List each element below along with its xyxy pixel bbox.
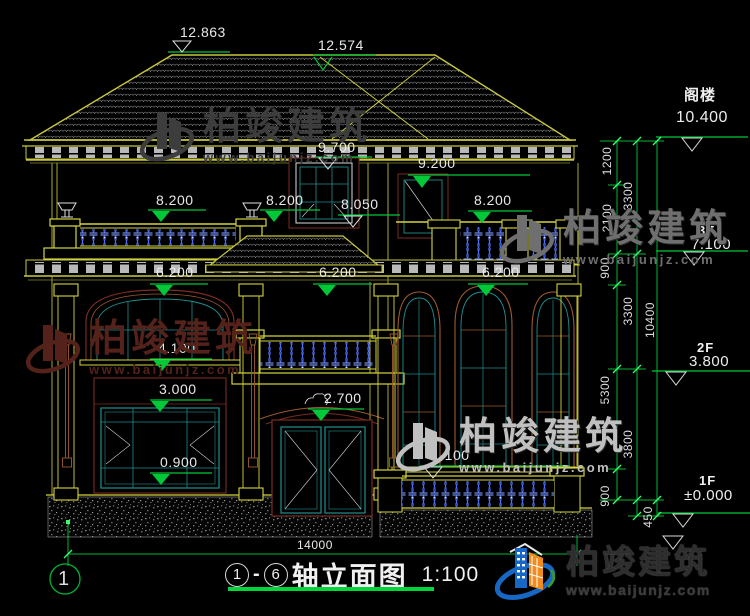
dim-900-lower: 900 (599, 473, 611, 519)
watermark-right: 柏竣建筑 www.baijunjz.com (498, 210, 731, 267)
watermark-brand-url: www.baijunjz.com (563, 252, 731, 267)
title-underline (228, 587, 434, 591)
elev-balcony-left-2: 8.200 (266, 193, 304, 207)
watermark-brand-url: www.baijunjz.com (459, 460, 627, 475)
level-attic-elev: 10.400 (676, 110, 728, 126)
level-1f-elev: ±0.000 (684, 488, 733, 503)
level-1f-name: 1F (699, 474, 716, 487)
watermark-brand-name: 柏竣建筑 (89, 320, 257, 358)
brand-logo-icon (24, 320, 82, 376)
dim-5300: 5300 (599, 367, 611, 413)
elev-62-right: 6.200 (482, 265, 520, 279)
watermark-brand-url: www.baijunjz.com (203, 150, 371, 165)
watermark-brand-url: www.baijunjz.com (89, 362, 257, 377)
brand-logo-icon (394, 418, 452, 474)
elev-balcony-right: 8.200 (474, 193, 512, 207)
elev-62-left: 6.200 (156, 265, 194, 279)
title-axis-end: 6 (264, 563, 288, 587)
elevation-drawing (0, 0, 750, 616)
title-axis-separator: - (253, 563, 260, 586)
watermark-brand-name: 柏竣建筑 (459, 418, 627, 456)
elev-62-mid: 6.200 (319, 265, 357, 279)
elev-roof-left: 12.863 (180, 25, 226, 39)
elev-attic-window: 9.200 (418, 156, 456, 170)
brand-name: 柏竣建筑 (566, 545, 711, 578)
brand-logo-color-icon (492, 540, 558, 602)
dim-450: 450 (642, 494, 654, 540)
cad-elevation-screenshot: 12.863 12.574 9.700 9.200 8.200 8.200 8.… (0, 0, 750, 616)
elev-window1f-top: 3.000 (159, 382, 197, 396)
elev-roof-right: 12.574 (318, 38, 364, 52)
brand-logo-icon (138, 108, 196, 164)
brand-url: www.baijunjz.com (566, 582, 711, 598)
elev-window1f-sill: 0.900 (160, 455, 198, 469)
title-scale: 1:100 (422, 563, 480, 587)
level-2f-elev: 3.800 (689, 354, 729, 369)
dim-10400-overall: 10400 (644, 297, 656, 343)
watermark-bottom: 柏竣建筑 www.baijunjz.com (394, 418, 627, 475)
level-attic-name: 阁楼 (684, 88, 716, 103)
elev-door-height: 2.700 (324, 391, 362, 405)
watermark-brand-name: 柏竣建筑 (203, 108, 371, 146)
elev-balcony-left-1: 8.200 (156, 193, 194, 207)
watermark-left: 柏竣建筑 www.baijunjz.com (24, 320, 257, 377)
axis-bubble-number: 1 (58, 569, 70, 589)
dim-3300-mid: 3300 (622, 288, 634, 334)
brand-logo-icon (498, 210, 556, 266)
title-axis-start: 1 (225, 563, 249, 587)
watermark-brand-name: 柏竣建筑 (563, 210, 731, 248)
brand-footer: 柏竣建筑 www.baijunjz.com (492, 540, 711, 602)
dim-14000-width: 14000 (297, 539, 333, 551)
watermark-top: 柏竣建筑 www.baijunjz.com (138, 108, 371, 165)
dim-1200: 1200 (601, 138, 613, 184)
elev-dormer-sill: 8.050 (341, 197, 379, 211)
